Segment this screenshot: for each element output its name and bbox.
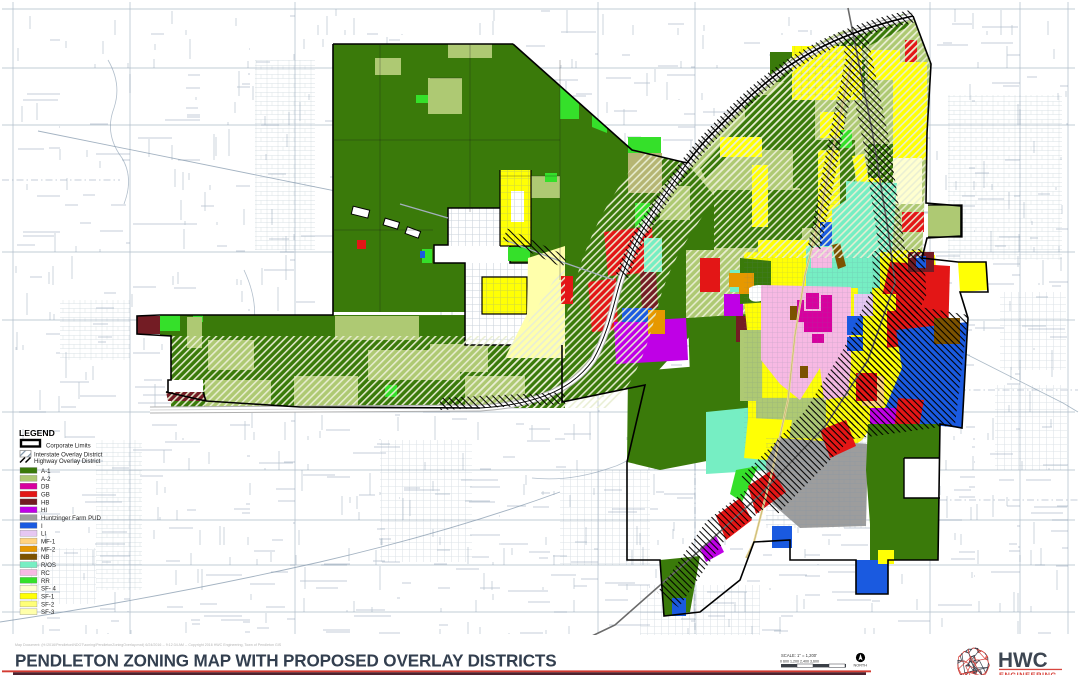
svg-text:MF-1: MF-1	[41, 539, 56, 546]
svg-text:Corporate Limits: Corporate Limits	[46, 443, 91, 450]
svg-text:SF-2: SF-2	[41, 601, 55, 608]
svg-text:SF-3: SF-3	[41, 609, 55, 616]
svg-text:R/OS: R/OS	[41, 562, 56, 569]
svg-text:SF- 4: SF- 4	[41, 586, 57, 593]
svg-text:HI: HI	[41, 507, 47, 514]
svg-text:0 600 1,200: 0 600 1,200 2,400 3,600	[780, 660, 819, 664]
svg-text:Highway Overlay District: Highway Overlay District	[34, 458, 101, 465]
svg-text:Huntzinger Farm PUD: Huntzinger Farm PUD	[41, 515, 102, 522]
svg-text:SF-1: SF-1	[41, 594, 55, 601]
svg-text:HWC: HWC	[998, 649, 1048, 672]
svg-text:LI: LI	[41, 531, 46, 538]
svg-text:DB: DB	[41, 484, 49, 491]
svg-text:A-1: A-1	[41, 468, 51, 475]
svg-text:HB: HB	[41, 499, 49, 506]
svg-text:Map Document: (H:\2016\Pendlet: Map Document: (H:\2016\PendletonINDOT\zo…	[15, 643, 282, 647]
svg-text:NORTH: NORTH	[854, 664, 868, 668]
svg-text:A-2: A-2	[41, 476, 51, 483]
svg-text:NB: NB	[41, 554, 49, 561]
svg-text:SCALE: 1" = 1,200': SCALE: 1" = 1,200'	[781, 653, 817, 658]
svg-text:RR: RR	[41, 578, 50, 585]
svg-text:RC: RC	[41, 570, 50, 577]
svg-text:ENGINEERING: ENGINEERING	[999, 671, 1057, 675]
svg-text:LEGEND: LEGEND	[19, 428, 55, 438]
svg-text:GB: GB	[41, 491, 50, 498]
svg-text:PENDLETON ZONING MAP WITH PROP: PENDLETON ZONING MAP WITH PROPOSED OVERL…	[15, 652, 556, 671]
svg-text:MF-2: MF-2	[41, 546, 56, 553]
svg-text:I: I	[41, 523, 43, 530]
